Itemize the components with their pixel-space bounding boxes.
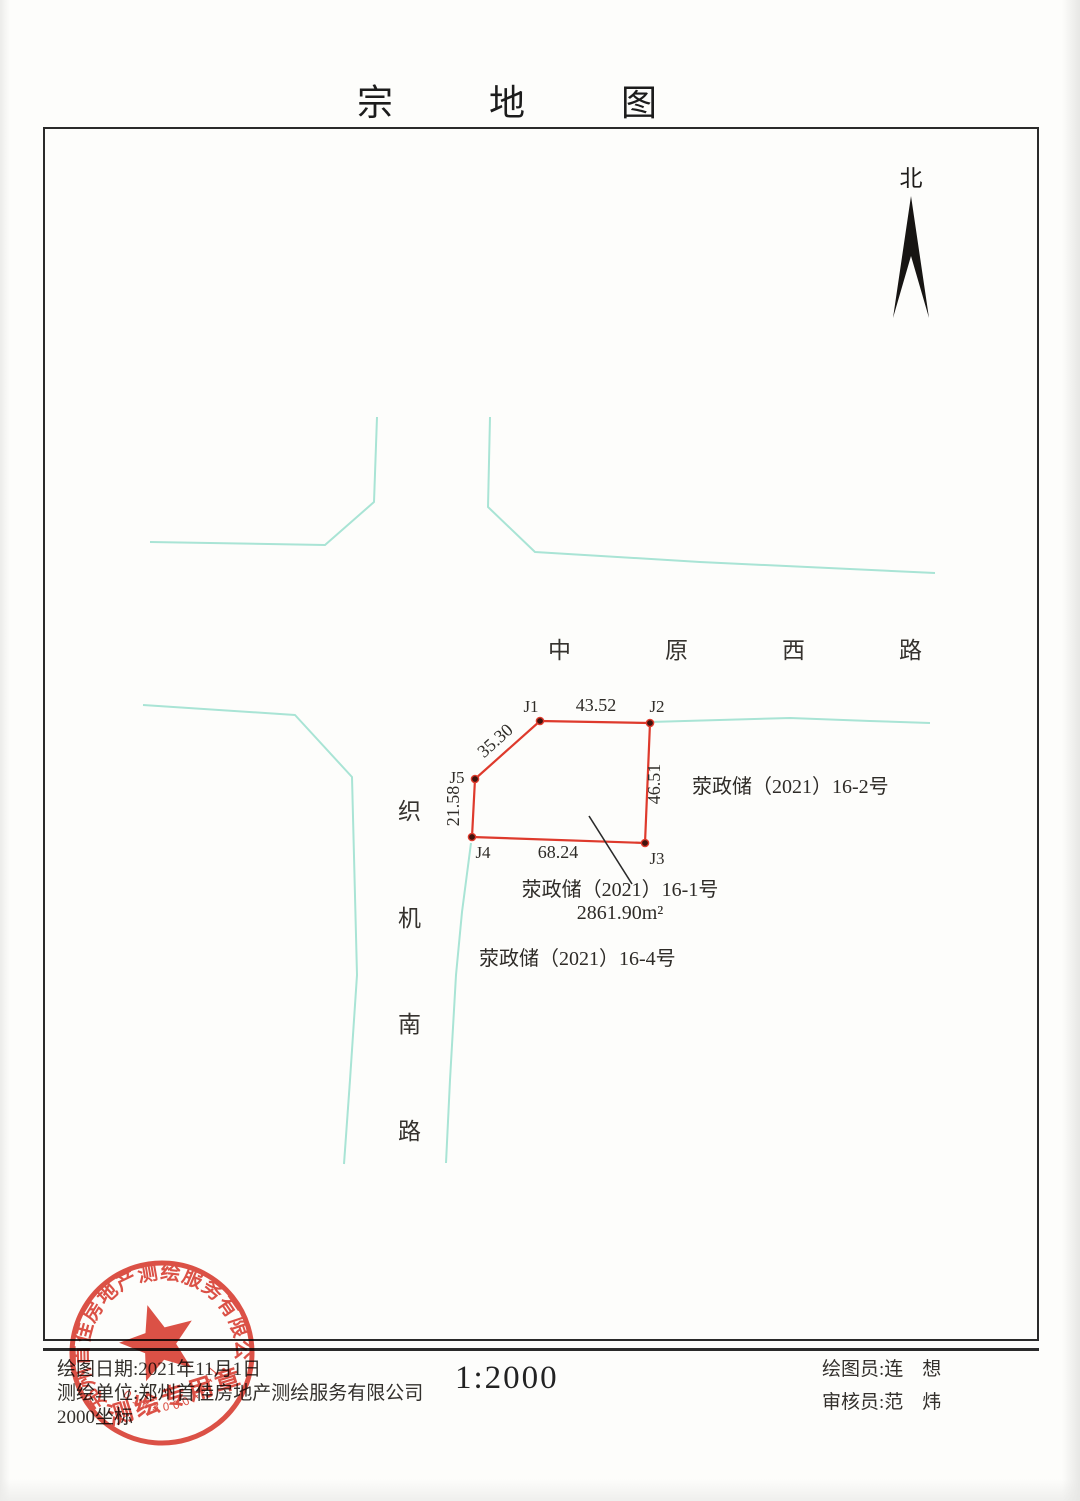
road-name-char: 原: [665, 631, 688, 665]
map-frame: [43, 127, 1039, 1341]
road-name-char: 路: [899, 631, 922, 665]
footer-survey-unit: 测绘单位:郑州首佳房地产测绘服务有限公司: [57, 1378, 423, 1405]
parcel-label-16-1-name: 荥政储（2021）16-1号: [488, 879, 752, 902]
title-char: 地: [489, 74, 525, 126]
parcel-label-16-1: 荥政储（2021）16-1号 2861.90m²: [488, 879, 752, 925]
parcel-label-16-4: 荥政储（2021）16-4号: [479, 942, 676, 971]
footer-draw-date: 绘图日期:2021年11月1日: [57, 1354, 261, 1381]
road-name-char: 南: [398, 1005, 421, 1039]
road-name-char: 西: [782, 631, 805, 665]
title-char: 宗: [357, 74, 393, 126]
road-name-char: 路: [398, 1112, 421, 1146]
parcel-label-16-1-area: 2861.90m²: [488, 902, 752, 925]
footer-checker: 审核员:范 炜: [822, 1387, 941, 1414]
footer-drafter: 绘图员:连 想: [822, 1354, 941, 1381]
footer-divider: [43, 1348, 1039, 1351]
footer-coord-system: 2000坐标: [57, 1402, 133, 1429]
map-scale: 1:2000: [455, 1360, 559, 1397]
road-name-char: 中: [548, 631, 571, 665]
page-title: 宗 地 图: [357, 74, 657, 126]
road-name-zhijinanlu: 织 机 南 路: [398, 792, 421, 1146]
road-name-char: 机: [398, 899, 421, 933]
title-char: 图: [621, 74, 657, 126]
road-name-char: 织: [398, 792, 421, 826]
road-name-zhongyuanxilu: 中 原 西 路: [548, 631, 922, 665]
parcel-label-16-2: 荥政储（2021）16-2号: [692, 770, 889, 799]
